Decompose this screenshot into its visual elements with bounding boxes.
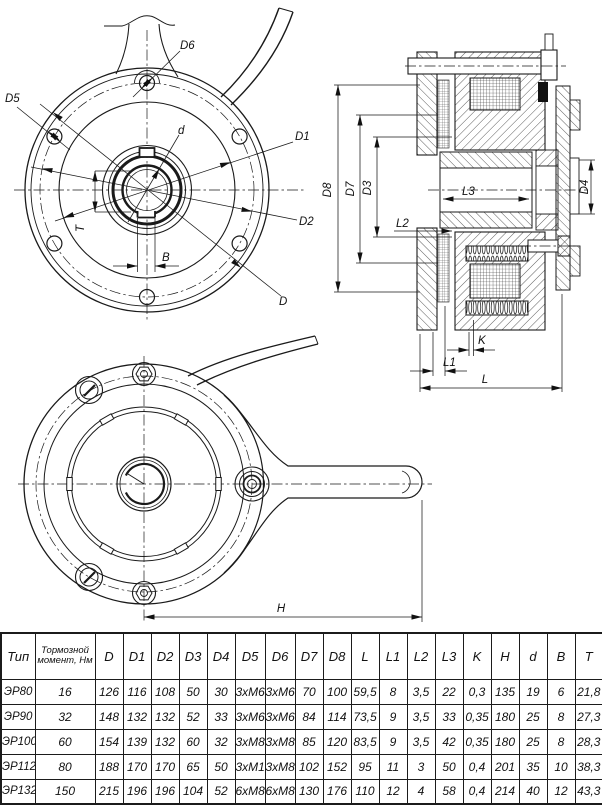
table-cell: 3,5 [407,729,435,754]
table-cell: 152 [323,754,351,779]
hub-sleeve-top [440,152,532,168]
table-cell: 114 [323,704,351,729]
table-cell: 83,5 [351,729,379,754]
table-cell: 196 [151,779,179,804]
column-header: H [491,633,519,679]
table-cell: 9 [379,704,407,729]
friction-disc-bottom [438,234,449,302]
dimensions-table: ТипТормозной момент, НмDD1D2D3D4D5D6D7D8… [0,632,602,805]
table-cell: 43,3 [575,779,602,804]
table-cell: 25 [519,729,547,754]
table-cell: 180 [491,729,519,754]
table-body: ЭР801612611610850303хМ63хМ67010059,583,5… [1,679,602,804]
brake-drawing: D5 D6 d D1 D2 D B T [0,0,602,632]
table-cell: 126 [95,679,123,704]
table-cell: 58 [435,779,463,804]
table-cell: 170 [151,754,179,779]
coil-bottom [470,264,520,298]
table-row: ЭР1128018817017065503хМ103хМ810215295113… [1,754,602,779]
table-cell: 8 [547,704,575,729]
springs-top-row [466,246,528,261]
table-cell: 170 [123,754,151,779]
table-cell: 215 [95,779,123,804]
table-cell: 135 [491,679,519,704]
dim-label-d-big: D [279,296,287,308]
table-row: ЭР801612611610850303хМ63хМ67010059,583,5… [1,679,602,704]
table-cell: 154 [95,729,123,754]
table-cell: 6хМ8 [265,779,295,804]
technical-drawing-page: D5 D6 d D1 D2 D B T [0,0,602,807]
flange-boss [570,158,579,214]
column-header: L1 [379,633,407,679]
table-cell: 32 [35,704,95,729]
dim-label-d3: D3 [362,180,374,195]
keyway-top-notch [140,148,155,157]
table-cell: 120 [323,729,351,754]
column-header: D [95,633,123,679]
springs-bottom-row [466,301,528,315]
table-cell: 3,5 [407,704,435,729]
table-cell: 3хМ8 [235,729,265,754]
table-cell: 0,35 [463,704,491,729]
table-cell: 22 [435,679,463,704]
table-cell: 52 [179,704,207,729]
flange-foot-top [570,100,580,130]
table-cell: 80 [35,754,95,779]
table-cell: 116 [123,679,151,704]
rear-flange [556,86,570,290]
table-header-row: ТипТормозной момент, НмDD1D2D3D4D5D6D7D8… [1,633,602,679]
table-cell: 188 [95,754,123,779]
table-cell: 11 [379,754,407,779]
table-cell: 33 [207,704,235,729]
slotted-screw-lower-left [76,564,103,591]
table-cell: 176 [323,779,351,804]
column-header: Тип [1,633,35,679]
column-header: L [351,633,379,679]
table-cell: 196 [123,779,151,804]
hub-sleeve-bottom [440,212,532,228]
table-cell: 0,3 [463,679,491,704]
table-row: ЭР1006015413913260323хМ83хМ88512083,593,… [1,729,602,754]
table-cell: 12 [379,779,407,804]
table-cell: 60 [179,729,207,754]
table-cell: 130 [295,779,323,804]
table-cell: 16 [35,679,95,704]
table-cell: 70 [295,679,323,704]
anchor-plate-bottom [417,228,437,330]
dim-label-d8: D8 [322,182,334,197]
table-cell: 9 [379,729,407,754]
table-cell: 150 [35,779,95,804]
dim-label-d1: D1 [295,131,310,143]
output-hub-top [536,150,558,166]
table-cell: 139 [123,729,151,754]
table-cell: 27,3 [575,704,602,729]
table-cell: 0,4 [463,779,491,804]
column-header: D4 [207,633,235,679]
column-header: T [575,633,602,679]
column-header: L3 [435,633,463,679]
dim-label-d6: D6 [180,40,195,52]
table-cell: 3хМ8 [265,729,295,754]
column-header: D3 [179,633,207,679]
table-cell: 52 [207,779,235,804]
brake-type-cell: ЭР132 [1,779,35,804]
table-cell: 8 [547,729,575,754]
table-cell: 32 [207,729,235,754]
dim-label-l2: L2 [396,218,409,230]
table-cell: 0,35 [463,729,491,754]
table-cell: 6хМ8 [235,779,265,804]
dim-label-d7: D7 [345,181,357,196]
table-cell: 30 [207,679,235,704]
column-header: D8 [323,633,351,679]
coil-top [470,78,520,110]
table-cell: 3хМ10 [235,754,265,779]
dim-label-d-small: d [178,125,185,137]
brake-type-cell: ЭР80 [1,679,35,704]
dim-label-l1: L1 [443,357,456,369]
table-cell: 3хМ8 [265,754,295,779]
table-cell: 25 [519,704,547,729]
column-header: D7 [295,633,323,679]
column-header: D5 [235,633,265,679]
dimensions-table-grid: ТипТормозной момент, НмDD1D2D3D4D5D6D7D8… [0,632,602,805]
table-cell: 42 [435,729,463,754]
table-cell: 3хМ6 [235,679,265,704]
column-header: K [463,633,491,679]
table-cell: 108 [151,679,179,704]
column-header: B [547,633,575,679]
table-cell: 148 [95,704,123,729]
dim-label-k: K [478,335,487,347]
column-header: D2 [151,633,179,679]
table-cell: 65 [179,754,207,779]
table-cell: 110 [351,779,379,804]
table-cell: 3,5 [407,679,435,704]
brake-type-cell: ЭР100 [1,729,35,754]
column-header: D6 [265,633,295,679]
table-cell: 35 [519,754,547,779]
table-cell: 4 [407,779,435,804]
table-cell: 84 [295,704,323,729]
table-cell: 8 [379,679,407,704]
table-cell: 201 [491,754,519,779]
rear-view: H [18,336,432,622]
dim-label-l: L [482,374,488,386]
table-cell: 59,5 [351,679,379,704]
flange-foot-bottom [570,246,580,276]
table-cell: 3 [407,754,435,779]
brake-type-cell: ЭР112 [1,754,35,779]
output-hub-bottom [536,214,558,230]
column-header: L2 [407,633,435,679]
table-cell: 132 [151,704,179,729]
column-header: d [519,633,547,679]
table-cell: 50 [207,754,235,779]
table-cell: 40 [519,779,547,804]
table-cell: 73,5 [351,704,379,729]
table-cell: 21,8 [575,679,602,704]
table-cell: 28,3 [575,729,602,754]
friction-disc-top [438,80,449,148]
dim-label-h: H [277,603,286,615]
front-view: D5 D6 d D1 D2 D B T [5,8,314,322]
dim-label-l3: L3 [462,186,475,198]
table-cell: 3хМ6 [265,704,295,729]
dim-label-t: T [75,224,87,232]
table-cell: 0,4 [463,754,491,779]
table-cell: 100 [323,679,351,704]
dim-label-b: B [162,252,170,264]
table-cell: 180 [491,704,519,729]
table-cell: 6 [547,679,575,704]
cable-front-view [221,8,293,105]
table-cell: 85 [295,729,323,754]
table-row: ЭР132150215196196104526хМ86хМ81301761101… [1,779,602,804]
slotted-screw-upper-left [76,377,103,404]
seal-block [538,82,548,102]
column-header: Тормозной момент, Нм [35,633,95,679]
column-header: D1 [123,633,151,679]
table-cell: 102 [295,754,323,779]
table-cell: 3хМ6 [235,704,265,729]
table-row: ЭР903214813213252333хМ63хМ68411473,593,5… [1,704,602,729]
section-view: D8 D7 D3 D4 L3 L2 K L1 L [322,34,595,392]
table-cell: 104 [179,779,207,804]
table-cell: 38,3 [575,754,602,779]
table-cell: 132 [123,704,151,729]
table-cell: 50 [179,679,207,704]
table-cell: 10 [547,754,575,779]
dim-label-d4: D4 [579,180,591,195]
table-cell: 50 [435,754,463,779]
table-cell: 33 [435,704,463,729]
table-cell: 95 [351,754,379,779]
cable-rear-view [188,336,318,385]
table-cell: 60 [35,729,95,754]
table-cell: 214 [491,779,519,804]
table-cell: 19 [519,679,547,704]
table-cell: 12 [547,779,575,804]
table-cell: 3хМ6 [265,679,295,704]
brake-type-cell: ЭР90 [1,704,35,729]
dim-label-d5: D5 [5,93,20,105]
dim-label-d2: D2 [299,216,314,228]
table-cell: 132 [151,729,179,754]
